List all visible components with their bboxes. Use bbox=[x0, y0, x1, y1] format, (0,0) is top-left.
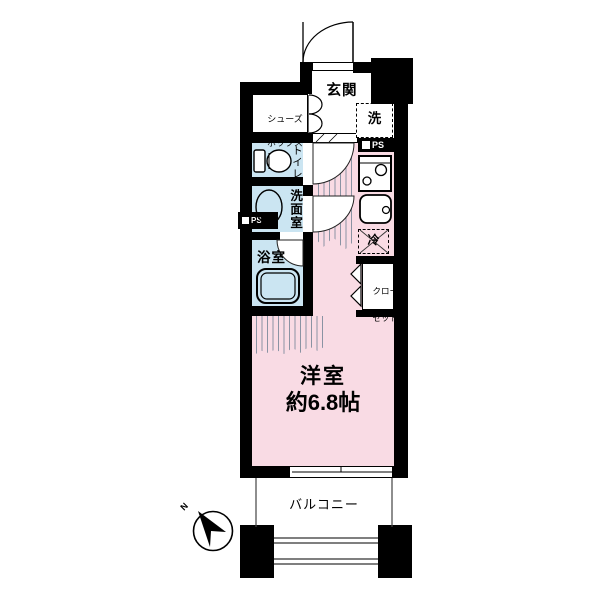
balcony-label: バルコニー bbox=[256, 498, 392, 512]
washer-label: 洗 bbox=[356, 112, 393, 126]
entrance-door-swing-arc bbox=[303, 22, 353, 62]
closet-label: クロー ゼット bbox=[363, 272, 393, 338]
room-size-label: 約6.8帖 bbox=[252, 391, 394, 414]
room-name-label: 洋室 bbox=[252, 366, 394, 388]
bathroom-label: 浴室 bbox=[257, 251, 286, 265]
toilet-label: トイレ bbox=[291, 145, 302, 180]
bathtub-inner bbox=[261, 273, 295, 299]
compass-north-label: N bbox=[178, 501, 190, 513]
stove-burner-small bbox=[363, 177, 371, 185]
closet-folding-door-lower bbox=[351, 286, 361, 306]
closet-folding-door-upper bbox=[351, 264, 361, 284]
washroom-door-swing bbox=[313, 196, 354, 232]
shoebox-label-line1: シューズ bbox=[267, 114, 303, 124]
washbasin bbox=[256, 190, 282, 224]
fridge-label: 冷 bbox=[358, 234, 389, 247]
entrance-label: 玄関 bbox=[312, 84, 372, 99]
kitchen-faucet bbox=[383, 207, 390, 214]
closet-label-line2: ゼット bbox=[372, 313, 398, 323]
step-hatch-line bbox=[316, 134, 324, 142]
shoebox-door-lower-arc bbox=[309, 114, 322, 133]
toilet-door-swing bbox=[313, 143, 354, 184]
stove-burner-large bbox=[376, 165, 387, 176]
step-hatch-line bbox=[329, 134, 337, 142]
closet-label-line1: クロー bbox=[372, 286, 398, 296]
floor-plan: PS PS bbox=[0, 0, 600, 600]
washroom-label: 洗面室 bbox=[288, 189, 301, 230]
